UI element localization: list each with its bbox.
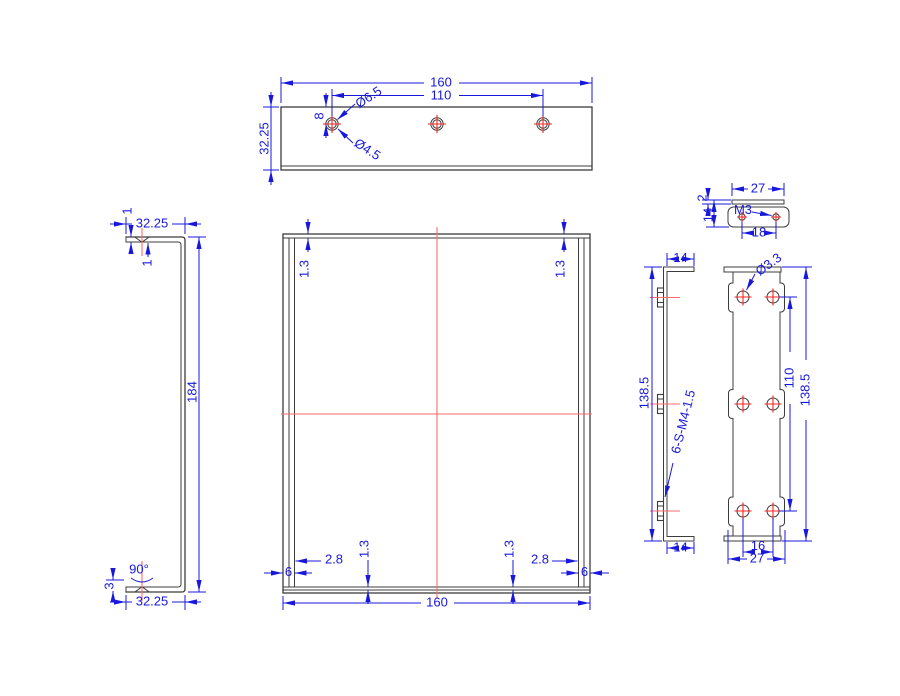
dim-edge-left: 6 [285, 564, 292, 579]
dim-plate-hole-spacing: 110 [431, 87, 452, 102]
plate-top-view: 160 110 32.25 8 Ø6.5 Ø4.5 [256, 74, 592, 185]
dim-lip-bottom-left: 1.3 [356, 540, 371, 558]
plate-front-centerlines [281, 227, 592, 599]
dim-channel-flange-top: 32.25 [136, 215, 169, 230]
label-clamp-thread: M3 [734, 202, 752, 217]
dim-lip-top-left: 1.3 [296, 260, 311, 278]
plate-front-view: 1.3 1.3 1.3 1.3 2.8 2.8 6 6 160 [264, 219, 609, 610]
dim-rail-flange-top: 14 [673, 250, 687, 265]
dim-channel-t2: 1 [139, 259, 154, 266]
dim-rail-side-height: 138.5 [636, 377, 651, 410]
cad-drawing: 160 110 32.25 8 Ø6.5 Ø4.5 [0, 0, 900, 696]
channel-dimensions: 32.25 1 1 184 90° 32.25 3 [101, 207, 206, 610]
label-rail-thread-note: 6-S-M4-1.5 [668, 388, 698, 455]
channel-side-view: 32.25 1 1 184 90° 32.25 3 [101, 207, 206, 610]
dim-offset-right: 2.8 [531, 551, 549, 566]
dim-plate-front-width: 160 [426, 594, 448, 609]
dim-plate-depth: 32.25 [256, 122, 271, 155]
label-hole-dia: Ø4.5 [352, 135, 384, 163]
label-rail-hole-dia: Ø3.3 [753, 250, 785, 279]
rail-side-view: 14 14 138.5 6-S-M4-1.5 [636, 250, 698, 555]
dim-offset-left: 2.8 [325, 551, 343, 566]
dim-clamp-thickness: 2 [694, 194, 709, 201]
dim-channel-height: 184 [184, 381, 199, 403]
dim-rail-front-height: 138.5 [797, 374, 812, 407]
dim-clamp-width: 27 [751, 180, 765, 195]
dim-channel-t1: 1 [119, 207, 134, 214]
dim-channel-flange-bottom: 32.25 [136, 593, 169, 608]
dim-rail-flange-bottom: 14 [673, 539, 687, 554]
dim-channel-lip: 3 [101, 582, 116, 589]
dim-plate-hole-offset: 8 [311, 112, 326, 119]
dim-lip-bottom-right: 1.3 [501, 540, 516, 558]
clamp-dimensions: 27 18 2 14 M3 [694, 180, 784, 239]
dim-edge-right: 6 [581, 564, 588, 579]
dim-lip-top-right: 1.3 [552, 260, 567, 278]
channel-outline [126, 237, 185, 592]
rail-side-centerlines [650, 298, 680, 512]
rail-front-outline [724, 267, 785, 541]
dim-clamp-hole-spacing: 18 [752, 224, 766, 239]
dim-rail-hole-span: 110 [781, 368, 796, 389]
dim-channel-angle: 90° [129, 561, 149, 576]
rail-front-view: Ø3.3 110 138.5 16 27 [724, 250, 812, 566]
clamp-top-view: 27 18 2 14 M3 [694, 180, 789, 239]
dim-rail-front-width: 27 [750, 550, 764, 565]
plate-top-holes [323, 115, 552, 133]
cad-drawing-canvas: 160 110 32.25 8 Ø6.5 Ø4.5 [0, 0, 900, 696]
dim-clamp-height: 14 [700, 208, 715, 222]
